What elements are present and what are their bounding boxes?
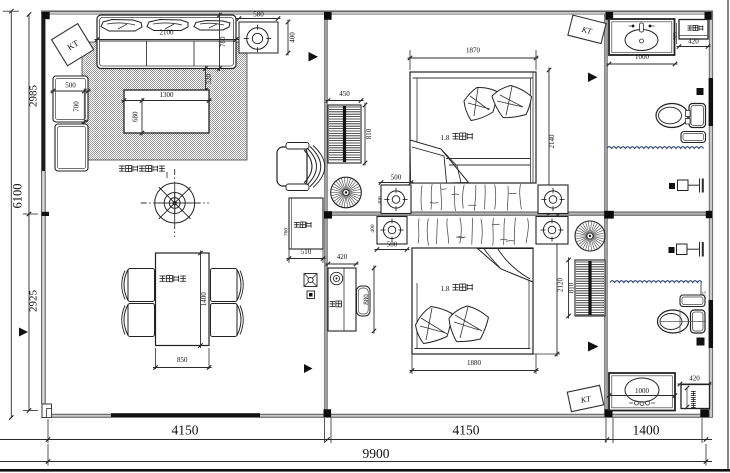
svg-text:500: 500 — [387, 241, 398, 249]
svg-text:400: 400 — [289, 32, 297, 43]
svg-text:420: 420 — [688, 38, 699, 46]
svg-text:1870: 1870 — [466, 47, 481, 55]
svg-text:880: 880 — [363, 294, 371, 305]
svg-text:400: 400 — [370, 224, 376, 233]
svg-text:680: 680 — [132, 111, 140, 122]
svg-text:500: 500 — [391, 174, 402, 182]
svg-text:525: 525 — [674, 32, 679, 40]
svg-text:9900: 9900 — [363, 446, 390, 461]
svg-text:4150: 4150 — [453, 423, 480, 438]
svg-text:400: 400 — [378, 196, 384, 205]
svg-text:2120: 2120 — [557, 278, 565, 293]
svg-text:1000: 1000 — [635, 53, 650, 61]
svg-text:450: 450 — [339, 90, 350, 98]
svg-text:2140: 2140 — [548, 134, 556, 149]
svg-text:2100: 2100 — [160, 29, 175, 37]
svg-text:2925: 2925 — [28, 290, 40, 313]
svg-text:850: 850 — [177, 356, 188, 364]
svg-text:1.8: 1.8 — [441, 134, 450, 142]
svg-text:1400: 1400 — [633, 423, 660, 438]
svg-text:320: 320 — [205, 74, 213, 85]
svg-text:4150: 4150 — [172, 423, 199, 438]
svg-text:760: 760 — [284, 228, 290, 237]
svg-text:1400: 1400 — [200, 292, 208, 307]
svg-text:700: 700 — [73, 101, 81, 112]
svg-text:810: 810 — [365, 128, 373, 139]
svg-text:1.8: 1.8 — [441, 285, 450, 293]
svg-text:420: 420 — [689, 375, 700, 383]
svg-text:510: 510 — [301, 248, 312, 256]
svg-text:580: 580 — [253, 11, 264, 19]
svg-text:2985: 2985 — [28, 85, 40, 108]
svg-text:810: 810 — [568, 282, 576, 293]
svg-text:6100: 6100 — [11, 184, 25, 209]
svg-text:500: 500 — [65, 82, 76, 90]
svg-text:1300: 1300 — [160, 91, 175, 99]
svg-text:1000: 1000 — [635, 387, 650, 395]
svg-text:780: 780 — [219, 36, 227, 47]
svg-text:420: 420 — [337, 253, 348, 261]
svg-text:1880: 1880 — [467, 359, 482, 367]
